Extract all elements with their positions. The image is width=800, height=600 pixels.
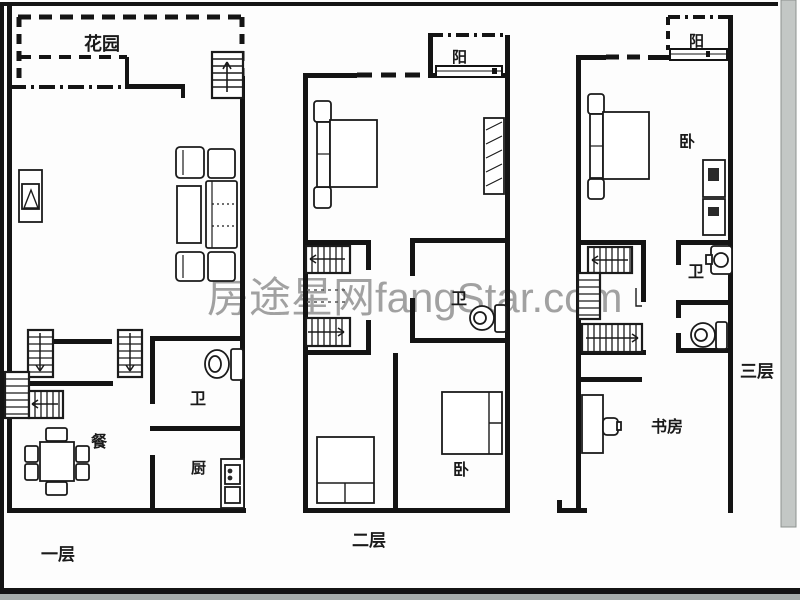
armchair-icon	[176, 147, 204, 178]
room-label-garden: 花园	[84, 33, 120, 54]
room-label-dining: 餐	[90, 432, 108, 451]
room-label-bath-f1: 卫	[190, 391, 206, 408]
desk-icon	[582, 395, 621, 453]
stairs-icon	[28, 330, 53, 377]
bed-icon	[317, 437, 374, 503]
room-label-study: 书房	[651, 417, 683, 436]
right-edge-bar	[781, 0, 796, 527]
room-label-kitchen: 厨	[191, 460, 206, 477]
pillow-icon	[588, 179, 604, 199]
room-label-bath-f3: 卫	[688, 264, 704, 281]
armchair-icon	[176, 252, 204, 281]
floor2-label: 二层	[352, 531, 386, 550]
frame-top	[0, 2, 778, 6]
room-label-bedroom-f2: 卧	[453, 461, 469, 479]
chair-icon	[617, 422, 621, 430]
chair-icon	[76, 446, 89, 462]
floor3-label: 三层	[740, 362, 774, 381]
bed-icon	[588, 94, 649, 199]
chair-icon	[46, 482, 67, 495]
coffee-table-icon	[177, 186, 201, 243]
toilet-icon	[691, 322, 727, 349]
side-table-icon	[208, 149, 235, 178]
stairs-icon	[118, 330, 142, 377]
frame-left	[0, 2, 4, 592]
frame-bottom	[0, 588, 800, 594]
side-table-icon	[208, 252, 235, 281]
floor1-label: 一层	[41, 545, 75, 564]
dining-table-icon	[40, 442, 74, 481]
tv-icon	[19, 170, 42, 222]
stairs-icon	[5, 372, 63, 418]
sofa-icon	[206, 181, 237, 248]
dining-table-set	[25, 428, 89, 495]
sofa-set	[176, 147, 237, 281]
pillow-icon	[588, 94, 604, 114]
bed-icon	[442, 392, 502, 454]
pillow-icon	[314, 101, 331, 122]
railing-icon	[436, 66, 502, 77]
chair-icon	[76, 464, 89, 480]
dresser-icon	[703, 160, 725, 235]
toilet-icon	[470, 305, 506, 332]
room-label-bath-f2: 卫	[451, 291, 467, 308]
room-label-balcony-f3: 阳	[689, 33, 704, 50]
chair-icon	[603, 418, 618, 435]
chair-icon	[25, 446, 38, 462]
room-label-bedroom-f3: 卧	[679, 133, 695, 151]
floorplan-canvas: 房途星网fangStar.com	[0, 0, 800, 600]
floorplan-image: 房途星网fangStar.com	[0, 0, 800, 600]
stairs-icon	[212, 52, 243, 98]
toilet-icon	[205, 349, 243, 380]
stove-icon	[221, 459, 244, 508]
sink-icon	[706, 246, 732, 274]
bed-icon	[314, 101, 377, 208]
chair-icon	[46, 428, 67, 441]
wardrobe-icon	[484, 118, 504, 194]
chair-icon	[25, 464, 38, 480]
frame-bottom-strip	[0, 594, 800, 600]
floor3-plan: 阳 卧 卫 书房 三层	[557, 15, 774, 513]
room-label-balcony-f2: 阳	[452, 49, 467, 66]
pillow-icon	[314, 187, 331, 208]
railing-icon	[670, 49, 727, 60]
